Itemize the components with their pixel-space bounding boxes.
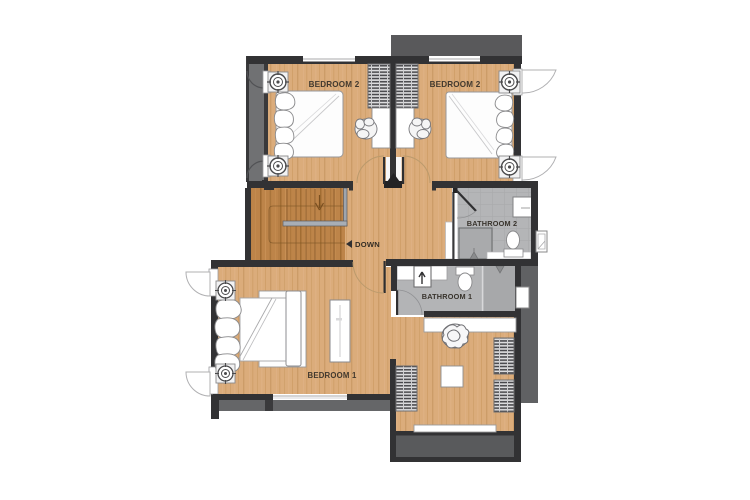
svg-text:BATHROOM 1: BATHROOM 1 (422, 292, 473, 301)
svg-text:BEDROOM 1: BEDROOM 1 (307, 371, 356, 380)
svg-text:BEDROOM 2: BEDROOM 2 (309, 80, 360, 89)
svg-text:BEDROOM 2: BEDROOM 2 (430, 80, 481, 89)
svg-text:DOWN: DOWN (355, 240, 380, 249)
svg-text:BATHROOM 2: BATHROOM 2 (467, 219, 518, 228)
